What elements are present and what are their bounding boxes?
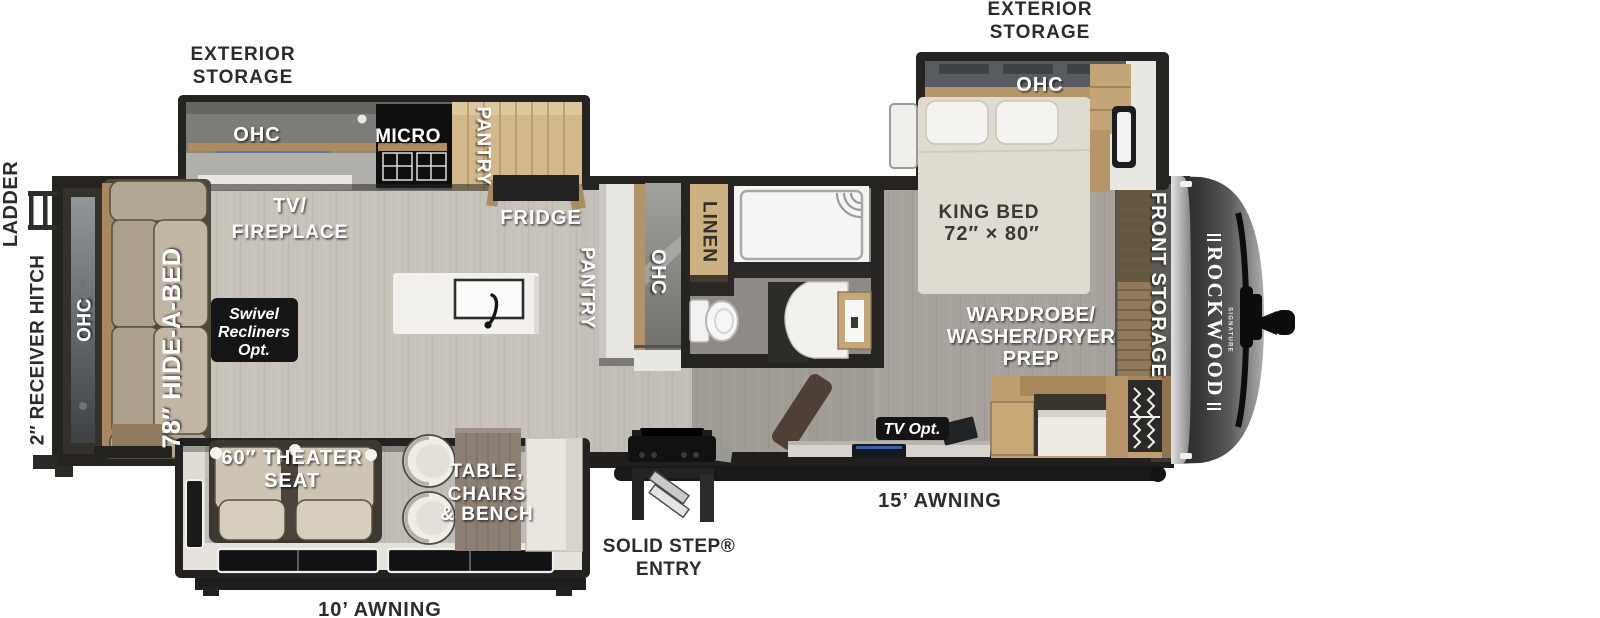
- svg-text:FRONT STORAGE: FRONT STORAGE: [1147, 192, 1169, 378]
- svg-text:TV Opt.: TV Opt.: [884, 421, 941, 438]
- svg-text:72″ × 80″: 72″ × 80″: [944, 223, 1039, 245]
- svg-text:& BENCH: & BENCH: [440, 504, 534, 525]
- svg-text:ENTRY: ENTRY: [636, 559, 702, 580]
- svg-text:60″ THEATER: 60″ THEATER: [221, 447, 362, 469]
- svg-text:CHAIRS: CHAIRS: [448, 484, 527, 505]
- svg-text:WARDROBE/: WARDROBE/: [967, 304, 1096, 326]
- svg-text:STORAGE: STORAGE: [193, 67, 294, 88]
- svg-text:OHC: OHC: [233, 124, 280, 146]
- svg-text:SIGNATURE: SIGNATURE: [1226, 307, 1232, 353]
- svg-text:FRIDGE: FRIDGE: [500, 207, 582, 229]
- svg-text:KING BED: KING BED: [939, 202, 1040, 223]
- svg-text:2″ RECEIVER HITCH: 2″ RECEIVER HITCH: [28, 255, 49, 446]
- svg-text:SOLID STEP®: SOLID STEP®: [603, 536, 735, 557]
- svg-text:STORAGE: STORAGE: [990, 22, 1091, 43]
- svg-text:Recliners: Recliners: [218, 324, 290, 341]
- svg-text:PREP: PREP: [1003, 348, 1059, 370]
- svg-text:Opt.: Opt.: [238, 342, 270, 359]
- svg-text:LINEN: LINEN: [699, 201, 720, 263]
- svg-text:SEAT: SEAT: [264, 470, 320, 492]
- svg-text:15’ AWNING: 15’ AWNING: [878, 490, 1002, 512]
- svg-text:78″ HIDE-A-BED: 78″ HIDE-A-BED: [158, 248, 186, 449]
- svg-text:EXTERIOR: EXTERIOR: [987, 0, 1092, 20]
- svg-text:PANTRY: PANTRY: [577, 247, 598, 329]
- svg-text:OHC: OHC: [1016, 74, 1063, 96]
- svg-text:OHC: OHC: [647, 249, 669, 295]
- svg-text:10’ AWNING: 10’ AWNING: [318, 599, 442, 618]
- svg-text:LADDER: LADDER: [0, 161, 22, 247]
- svg-text:TABLE,: TABLE,: [450, 461, 523, 482]
- svg-text:ROCKWOOD: ROCKWOOD: [1203, 246, 1227, 398]
- svg-text:WASHER/DRYER: WASHER/DRYER: [947, 326, 1116, 348]
- svg-text:Swivel: Swivel: [229, 306, 279, 323]
- svg-text:MICRO: MICRO: [375, 126, 441, 147]
- svg-text:EXTERIOR: EXTERIOR: [190, 44, 295, 65]
- svg-text:FIREPLACE: FIREPLACE: [232, 222, 349, 243]
- svg-text:OHC: OHC: [75, 298, 96, 342]
- svg-text:TV/: TV/: [273, 195, 307, 217]
- svg-text:PANTRY: PANTRY: [473, 107, 494, 186]
